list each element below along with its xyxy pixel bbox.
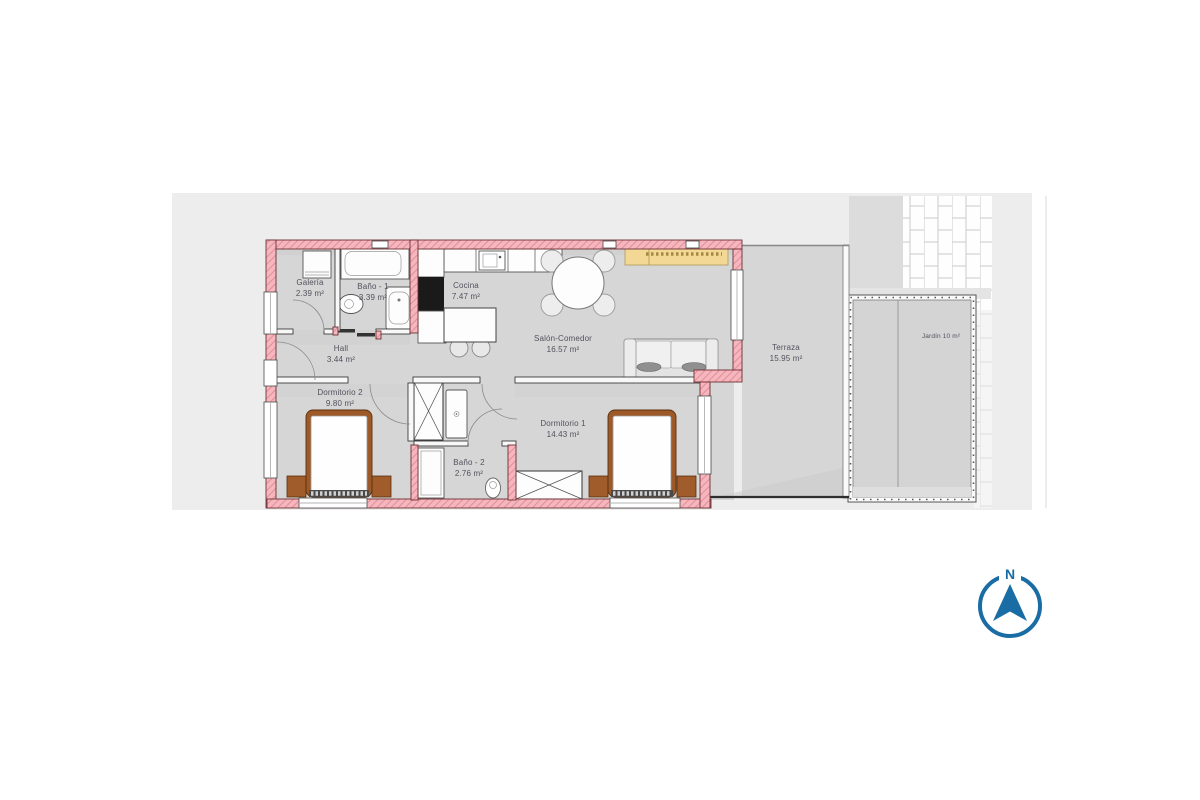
room-label-galeria: Galería2.39 m² (296, 278, 324, 299)
room-label-terraza: Terraza15.95 m² (770, 343, 803, 364)
room-label-jardin: Jardín 10 m² (922, 333, 960, 341)
north-arrow-icon (993, 584, 1027, 621)
toilet (486, 478, 501, 498)
oven (418, 277, 444, 311)
jardin-garden (848, 295, 976, 502)
room-label-cocina: Cocina7.47 m² (452, 281, 480, 302)
room-label-dormitorio-1: Dormitorio 114.43 m² (540, 419, 585, 440)
floor-plan-drawing: N (0, 0, 1200, 800)
nightstand (677, 476, 696, 497)
room-label-bano-1: Baño - 13.39 m² (357, 282, 388, 303)
shower-tray (418, 448, 444, 498)
sideboard (625, 248, 728, 265)
shower (386, 287, 412, 329)
nightstand (589, 476, 608, 497)
wardrobe-corridor (414, 382, 443, 440)
entry-door (264, 360, 277, 386)
nightstand (372, 476, 391, 497)
nightstand (287, 476, 306, 497)
north-compass: N (980, 566, 1040, 636)
wardrobe-dormitorio-1 (516, 471, 582, 499)
washing-machine (303, 251, 331, 278)
room-label-salon-comedor: Salón-Comedor16.57 m² (534, 334, 592, 355)
vanity-corridor (446, 390, 467, 438)
dining-table (541, 250, 615, 316)
kitchen-island (444, 308, 496, 342)
floor-plan-page: N Galería2.39 m² Baño - 13.39 m² Cocina7… (0, 0, 1200, 800)
compass-north-letter: N (1005, 566, 1015, 582)
room-label-dormitorio-2: Dormitorio 29.80 m² (317, 388, 362, 409)
bathtub (341, 248, 409, 279)
room-label-bano-2: Baño - 22.76 m² (453, 458, 484, 479)
room-label-hall: Hall3.44 m² (327, 344, 355, 365)
